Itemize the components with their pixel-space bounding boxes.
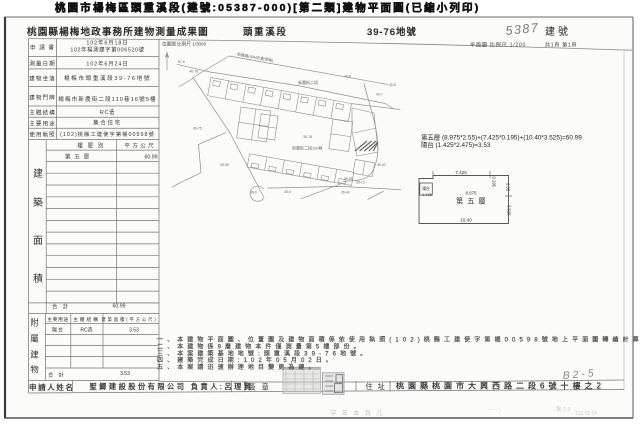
svg-text:陽台: 陽台 <box>52 327 64 334</box>
svg-text:四、建築完成日期:102年05月02日。: 四、建築完成日期:102年05月02日。 <box>157 356 336 364</box>
svg-text:2.55: 2.55 <box>506 183 511 192</box>
svg-text:一 ~ 」: 一 ~ 」 <box>488 408 504 414</box>
svg-text:平方公尺: 平方公尺 <box>124 142 156 150</box>
svg-text:3.525: 3.525 <box>507 205 512 216</box>
svg-text:物: 物 <box>30 364 39 374</box>
svg-text:位置圖 比例尺 1/3000: 位置圖 比例尺 1/3000 <box>162 41 207 48</box>
svg-text:39-76: 39-76 <box>303 135 312 139</box>
svg-text:8.975: 8.975 <box>466 191 478 196</box>
svg-text:39-9: 39-9 <box>250 191 257 195</box>
svg-text:桃園市楊梅區頭重溪段(建號:05387-000)[第二類]建: 桃園市楊梅區頭重溪段(建號:05387-000)[第二類]建物平面圖(已縮小列印… <box>55 1 480 14</box>
svg-text:住 址: 住 址 <box>366 382 387 391</box>
svg-text:建物坐落: 建物坐落 <box>29 75 55 83</box>
svg-text:桃園縣楊梅地政事務所建物測量成果圖: 桃園縣楊梅地政事務所建物測量成果圖 <box>27 26 209 38</box>
svg-text:102年6月18日: 102年6月18日 <box>86 39 128 47</box>
svg-text:39-43: 39-43 <box>341 191 350 195</box>
svg-text:二、本建物係9層建物本件僅測量第5樓部份。: 二、本建物係9層建物本件僅測量第5樓部份。 <box>157 343 364 351</box>
svg-text:102年6月24日: 102年6月24日 <box>86 59 128 67</box>
svg-text:聖鯽建設股份有限公司 負責人:呂理賢: 聖鯽建設股份有限公司 負責人:呂理賢 <box>90 382 254 391</box>
svg-text:附: 附 <box>30 318 39 328</box>
svg-text:屬: 屬 <box>30 334 39 344</box>
svg-text:主體結構: 主體結構 <box>73 316 100 323</box>
svg-text:築: 築 <box>33 196 43 209</box>
svg-text:0.195: 0.195 <box>492 177 497 188</box>
svg-text:39-75: 39-75 <box>193 127 202 131</box>
svg-text:批 1.9: 批 1.9 <box>556 405 571 413</box>
svg-text:桃園縣桃園市大興西路二段6號十樓之2: 桃園縣桃園市大興西路二段6號十樓之2 <box>396 381 605 391</box>
svg-text:集合住宅: 集合住宅 <box>93 119 122 127</box>
svg-text:1.425: 1.425 <box>422 192 432 197</box>
svg-text:97-6: 97-6 <box>178 60 185 64</box>
svg-text:7.425: 7.425 <box>455 170 467 175</box>
svg-text:第五層: 第五層 <box>456 197 490 206</box>
svg-text:RC造: RC造 <box>80 327 92 334</box>
svg-text:3.53: 3.53 <box>129 327 139 333</box>
svg-text:10.40: 10.40 <box>460 218 472 223</box>
svg-text:建築面積(平方公尺): 建築面積(平方公尺) <box>101 316 157 323</box>
svg-text:新農街二段110巷: 新農街二段110巷 <box>292 145 322 151</box>
svg-text:陽台 (1.425*2.475)=3.53: 陽台 (1.425*2.475)=3.53 <box>421 140 491 149</box>
svg-text:102 01 04: 102 01 04 <box>575 411 597 417</box>
svg-text:合 計: 合 計 <box>48 371 66 379</box>
svg-text:一、本建物平面圖、位置圖及建物面積係依使用執照(102)桃縣: 一、本建物平面圖、位置圖及建物面積係依使用執照(102)桃縣工建使字第楊0059… <box>157 336 640 344</box>
svg-text:40-8: 40-8 <box>389 83 396 87</box>
svg-text:建: 建 <box>30 350 39 360</box>
svg-text:39-65: 39-65 <box>344 177 353 181</box>
svg-text:主要用途: 主要用途 <box>29 120 55 128</box>
svg-text:申請人姓名: 申請人姓名 <box>29 382 74 392</box>
svg-text:建: 建 <box>33 167 43 180</box>
svg-text:学年本頁几: 学年本頁几 <box>330 408 388 417</box>
svg-text:建物門牌: 建物門牌 <box>29 94 55 102</box>
svg-text:(102)桃縣工建使字第楊00598號: (102)桃縣工建使字第楊00598號 <box>60 130 155 138</box>
svg-text:40-9: 40-9 <box>344 75 351 79</box>
svg-text:40-78: 40-78 <box>190 70 199 74</box>
svg-text:五、本案請迅速辦理地目變更為建。: 五、本案請迅速辦理地目變更為建。 <box>157 363 319 371</box>
svg-text:使用執照: 使用執照 <box>29 131 55 139</box>
svg-text:102年楊測建字第006520號: 102年楊測建字第006520號 <box>70 46 144 54</box>
svg-text:3.53: 3.53 <box>120 371 130 377</box>
svg-text:39-73: 39-73 <box>356 181 365 185</box>
svg-text:60.99: 60.99 <box>113 304 126 310</box>
svg-text:積: 積 <box>33 272 43 285</box>
svg-text:新農街二段: 新農街二段 <box>298 79 318 85</box>
svg-text:39-42: 39-42 <box>377 163 386 167</box>
svg-text:測量日期: 測量日期 <box>29 60 55 68</box>
svg-text:陽台: 陽台 <box>422 186 430 191</box>
svg-text:39-96: 39-96 <box>220 163 229 167</box>
svg-text:主體結構: 主體結構 <box>29 109 55 117</box>
svg-text:60.99: 60.99 <box>145 154 158 160</box>
svg-text:合 計: 合 計 <box>52 303 70 311</box>
svg-text:楊梅市頭重溪段39-76地號: 楊梅市頭重溪段39-76地號 <box>64 74 151 82</box>
svg-text:樓 層 別: 樓 層 別 <box>77 142 105 150</box>
svg-text:面: 面 <box>33 236 43 247</box>
svg-text:主要用途: 主要用途 <box>47 316 69 323</box>
svg-text:申 請 書: 申 請 書 <box>30 44 55 52</box>
svg-text:楊梅市新農街二段110巷16號5樓: 楊梅市新農街二段110巷16號5樓 <box>58 95 156 103</box>
svg-text:頭重溪段: 頭重溪段 <box>243 26 288 37</box>
svg-text:三、本案建築基地地號:頭重溪段39-76地號。: 三、本案建築基地地號:頭重溪段39-76地號。 <box>157 349 370 357</box>
svg-text:平面圖 比例尺 1/200: 平面圖 比例尺 1/200 <box>470 41 526 49</box>
svg-text:簽 章: 簽 章 <box>249 383 271 392</box>
svg-text:39-76地號: 39-76地號 <box>367 26 417 37</box>
svg-text:40-7: 40-7 <box>376 93 383 97</box>
svg-text:共1頁 第1頁: 共1頁 第1頁 <box>545 41 577 49</box>
svg-text:第五層 (8.975*2.55)+(7.425*0.195): 第五層 (8.975*2.55)+(7.425*0.195)+(10.40*3.… <box>421 133 582 142</box>
svg-text:RC造: RC造 <box>100 108 115 116</box>
svg-text:第五層: 第五層 <box>65 152 93 160</box>
svg-text:建號: 建號 <box>545 25 571 38</box>
svg-text:39-4: 39-4 <box>284 190 291 194</box>
